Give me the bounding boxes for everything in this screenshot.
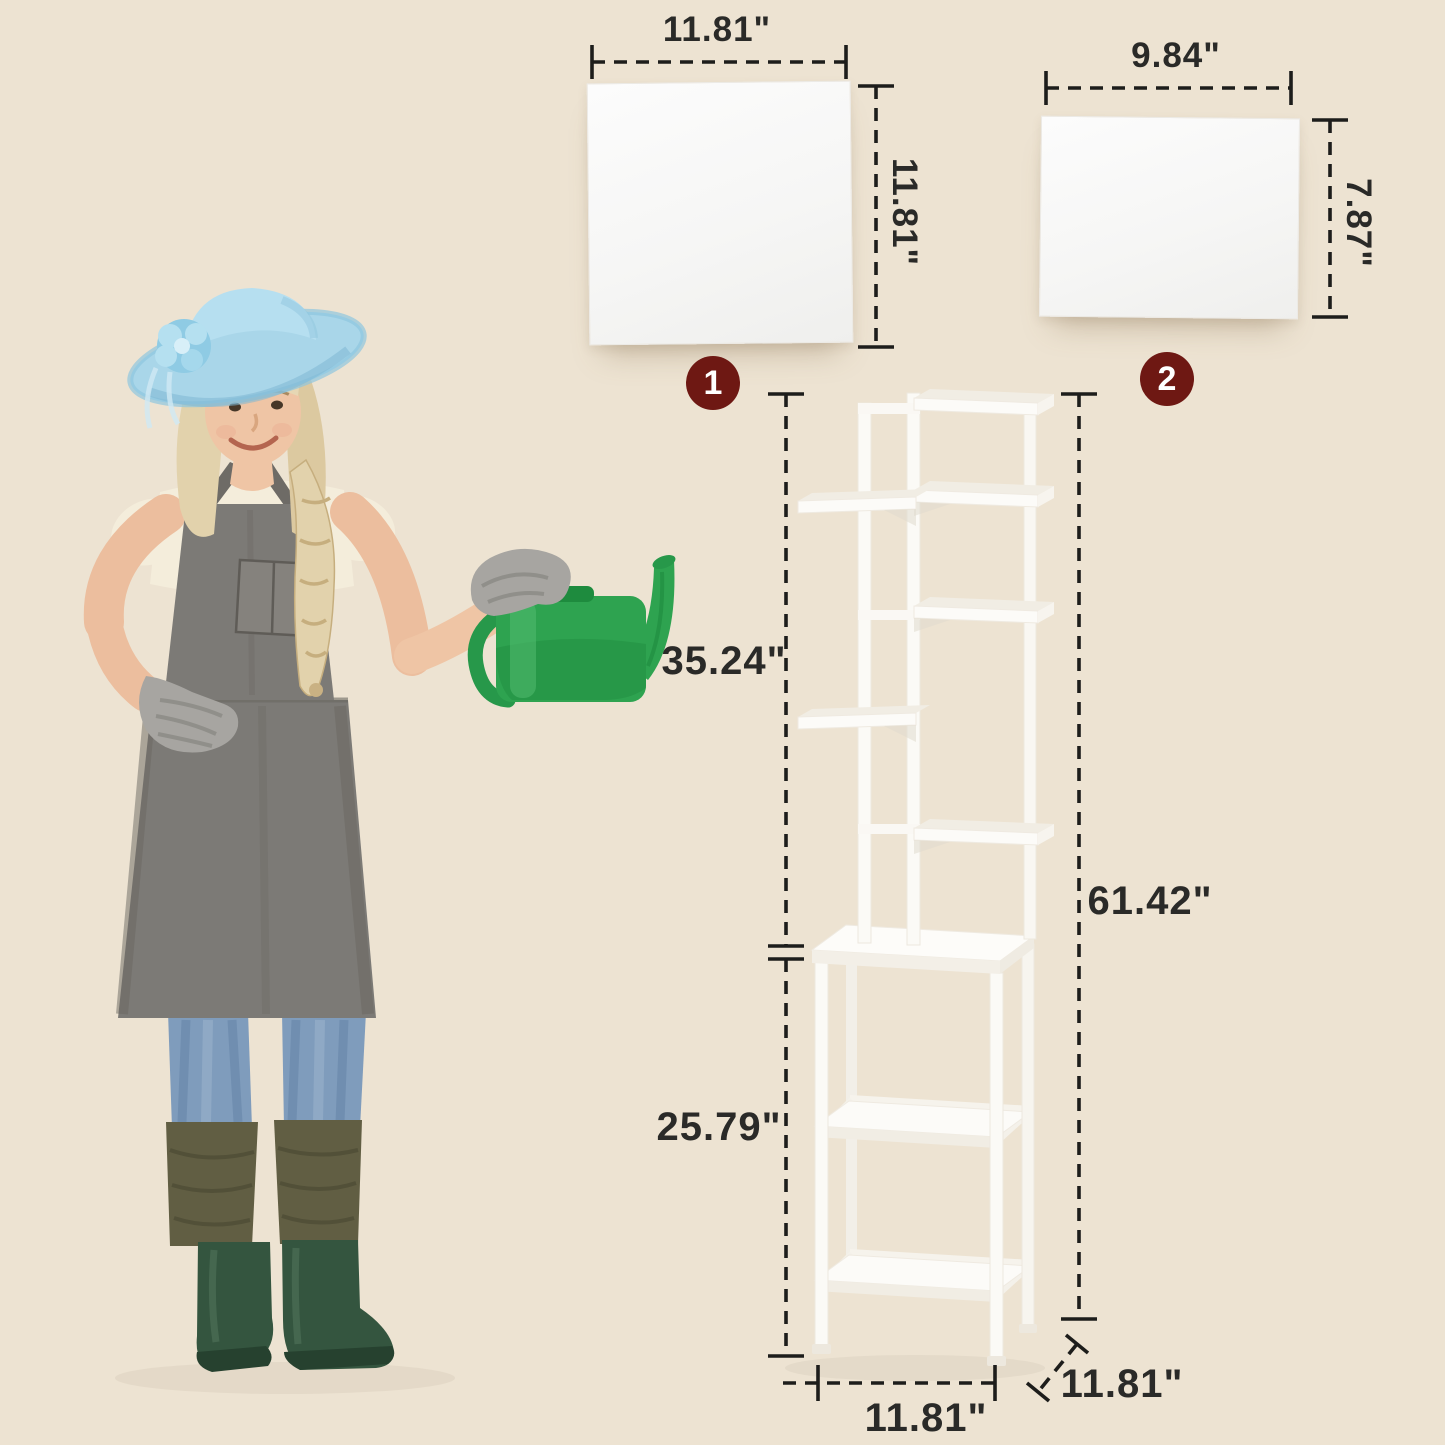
panel1-height-label: 11.81" — [880, 82, 928, 342]
illustration-layer — [0, 0, 1445, 1445]
dim-shelf-total — [1061, 394, 1097, 1319]
badge-2: 2 — [1140, 352, 1194, 406]
panel1-width-label: 11.81" — [587, 6, 847, 54]
total-height-label: 61.42" — [1020, 877, 1280, 925]
panel2-height-label: 7.87" — [1334, 93, 1382, 353]
product-dimension-image: 11.81" 11.81" 1 9.84" 7.87" 2 35.24" 61.… — [0, 0, 1445, 1445]
badge-1: 1 — [686, 356, 740, 410]
corner-shelf-unit — [785, 389, 1054, 1381]
floor-shadow — [115, 1362, 455, 1394]
upper-height-label: 35.24" — [594, 637, 854, 685]
dim-shelf-lower — [768, 959, 804, 1356]
base-depth-label: 11.81" — [992, 1360, 1252, 1408]
lower-height-label: 25.79" — [589, 1103, 849, 1151]
jeans — [168, 1012, 366, 1128]
apron-skirt — [118, 700, 376, 1018]
woman-gardener-photo — [100, 288, 677, 1394]
rubber-boots — [197, 1240, 395, 1372]
boot-cuffs — [166, 1120, 362, 1246]
dimension-lines — [592, 45, 1348, 1401]
panel2-width-label: 9.84" — [1046, 32, 1306, 80]
